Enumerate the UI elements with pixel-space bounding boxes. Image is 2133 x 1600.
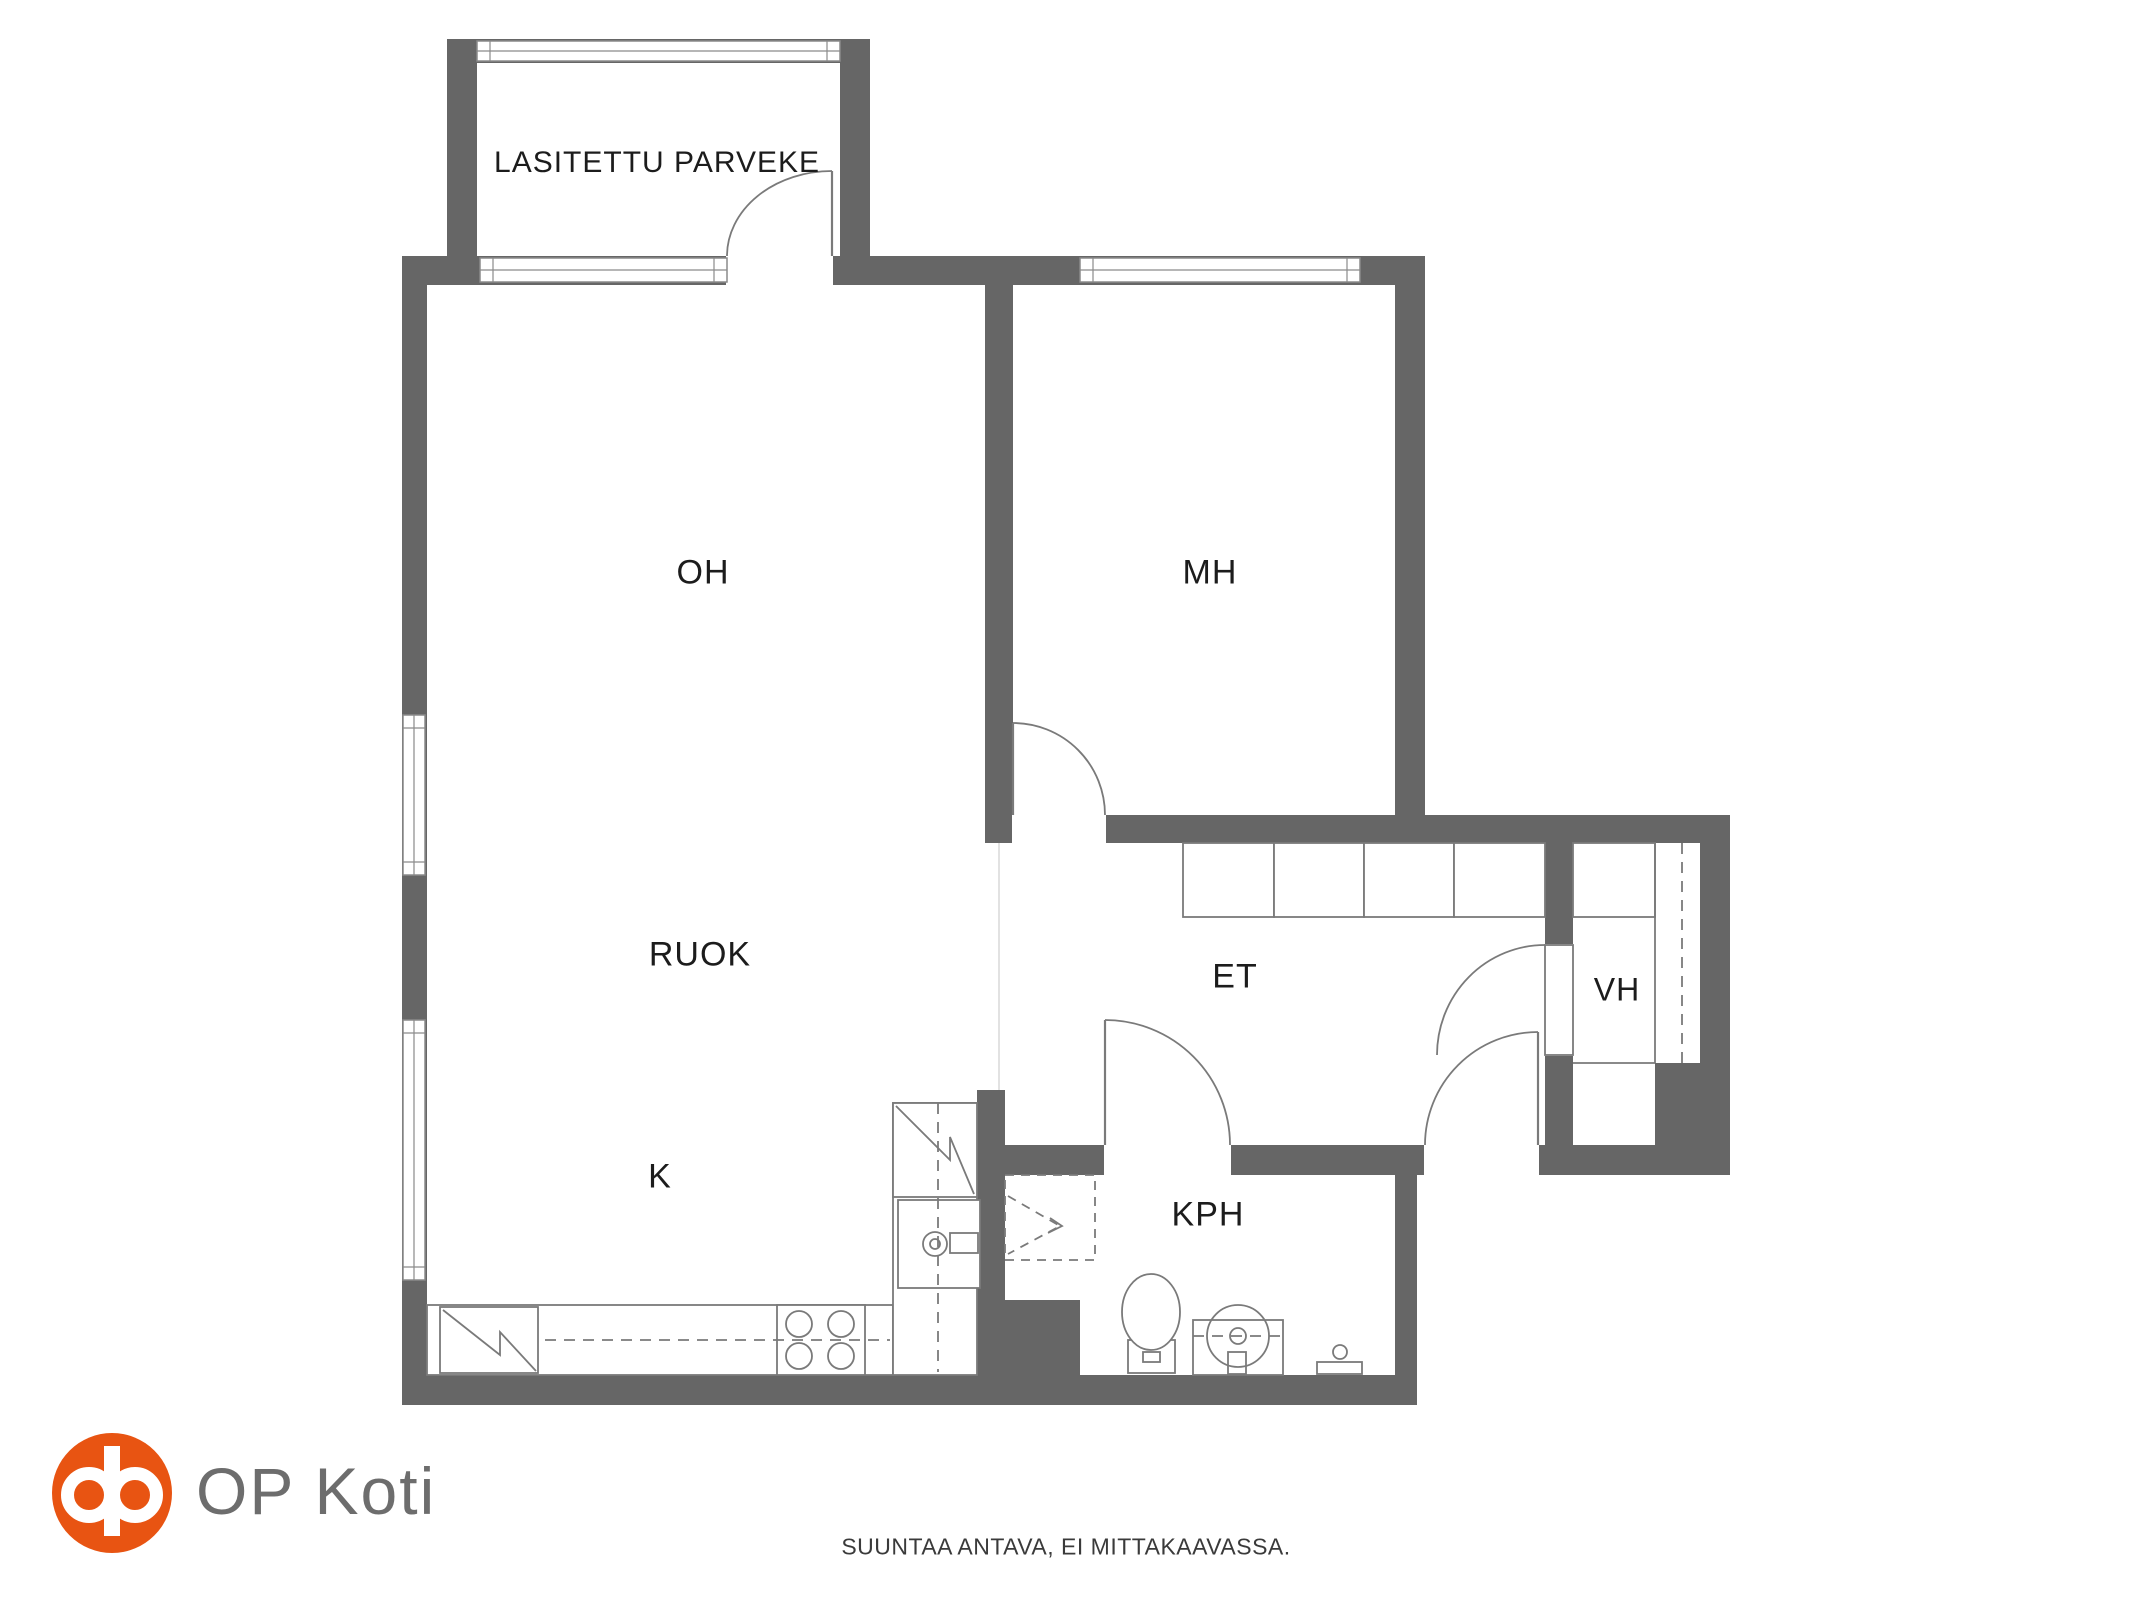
bottom-wall [402,1375,1417,1405]
floor-plan [0,0,2133,1600]
kph-door-opening [1104,1144,1231,1176]
balcony-door-opening [726,255,833,286]
disclaimer-text: SUUNTAA ANTAVA, EI MITTAKAAVASSA. [841,1534,1290,1561]
kph-door-swing-arc [1105,1020,1230,1145]
vh-cabinet [1573,843,1655,917]
corner-block [1655,1063,1730,1175]
sink-handle [950,1233,978,1253]
shower-arrow [1008,1196,1060,1254]
tall-cabinet [893,1103,977,1197]
balcony-left-wall [447,39,477,256]
balcony-right-wall [840,39,870,256]
kph-left-block [977,1300,1080,1375]
washbasin-stub [1228,1352,1246,1374]
balcony-door-swing-arc [727,171,832,256]
et-closet-cell [1183,843,1274,917]
vh-door-leaf [1545,945,1573,1055]
vh-top-wall [1395,815,1730,843]
room-label-entry-hall: ET [1212,958,1257,997]
vh-door-swing-arc [1437,945,1545,1055]
room-label-dining: RUOK [649,936,751,975]
mh-door-opening [1012,814,1106,844]
et-closet-cell [1454,843,1545,917]
shower-area [1005,1175,1095,1260]
mh-right-wall [1395,285,1425,815]
entry-door-opening [1424,1144,1539,1176]
mh-door-swing-arc [1013,723,1105,815]
mixer-knob [1333,1345,1347,1359]
et-closet-cell [1364,843,1454,917]
room-label-living-room: OH [677,554,730,593]
et-bottom-wall [977,1145,1655,1175]
room-label-bedroom: MH [1183,554,1238,593]
oh-mh-wall [985,285,1013,815]
fridge [440,1307,538,1373]
op-logo-icon [52,1433,172,1553]
room-label-bathroom: KPH [1172,1196,1245,1235]
brand-wordmark: OP Koti [196,1455,436,1527]
mixer-bar [1317,1362,1362,1374]
toilet-button [1143,1352,1160,1362]
et-closet-cell [1274,843,1364,917]
kph-right-wall [1395,1163,1417,1405]
right-wall [1700,843,1730,1063]
entry-door-swing-arc [1425,1032,1538,1145]
room-label-closet: VH [1594,972,1640,1009]
room-label-kitchen: K [648,1158,672,1197]
room-label-balcony: LASITETTU PARVEKE [494,146,820,180]
toilet-bowl [1122,1274,1180,1350]
floor-plan-page: LASITETTU PARVEKEOHMHRUOKKETVHKPH OP Kot… [0,0,2133,1600]
